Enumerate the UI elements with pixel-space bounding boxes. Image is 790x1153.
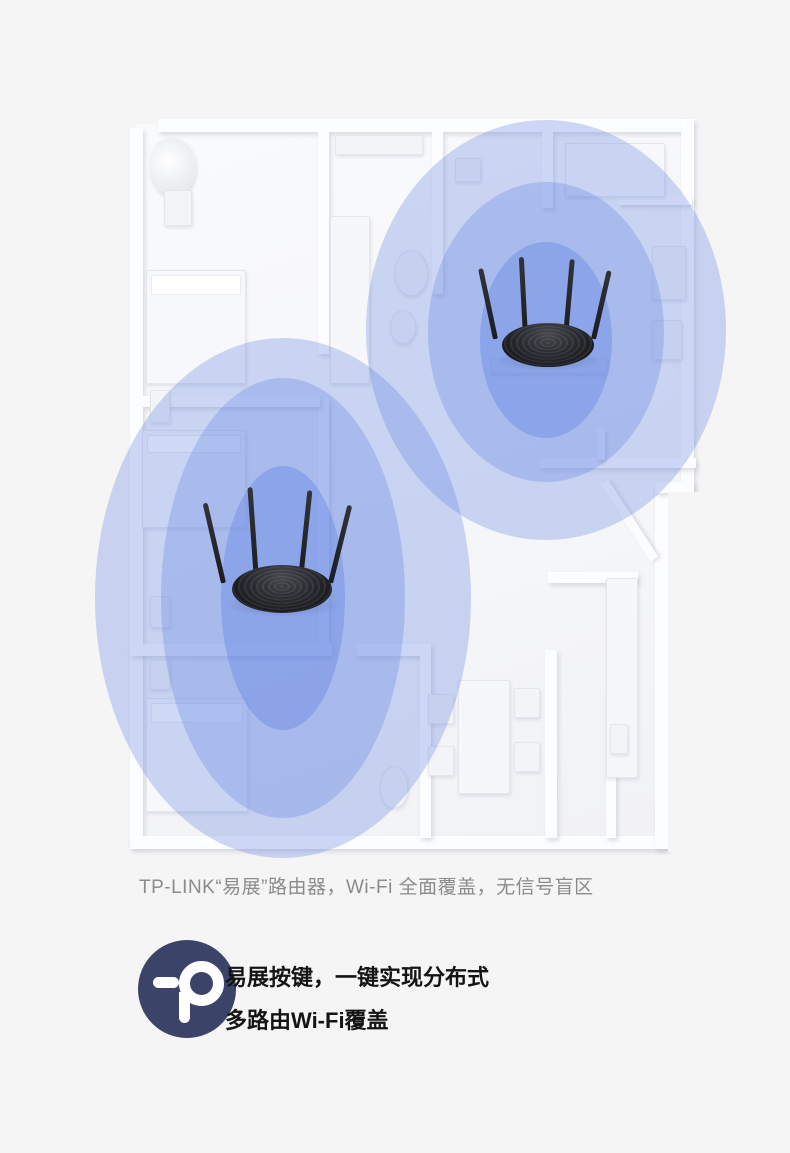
product-image: TP-LINK“易展”路由器，Wi-Fi 全面覆盖，无信号盲区 易展按键，一键实… bbox=[0, 0, 790, 1153]
logo-dash-icon bbox=[153, 977, 179, 988]
caption-text: TP-LINK“易展”路由器，Wi-Fi 全面覆盖，无信号盲区 bbox=[139, 872, 594, 899]
feature-headline-line1: 易展按键，一键实现分布式 bbox=[225, 960, 489, 992]
feature-headline-line2: 多路由Wi-Fi覆盖 bbox=[225, 1003, 389, 1035]
router-body bbox=[232, 565, 332, 613]
easy-mesh-logo bbox=[138, 940, 236, 1038]
router-body bbox=[502, 323, 594, 367]
logo-stem-icon bbox=[179, 992, 190, 1023]
router-1 bbox=[216, 487, 348, 622]
router-2 bbox=[489, 257, 607, 372]
